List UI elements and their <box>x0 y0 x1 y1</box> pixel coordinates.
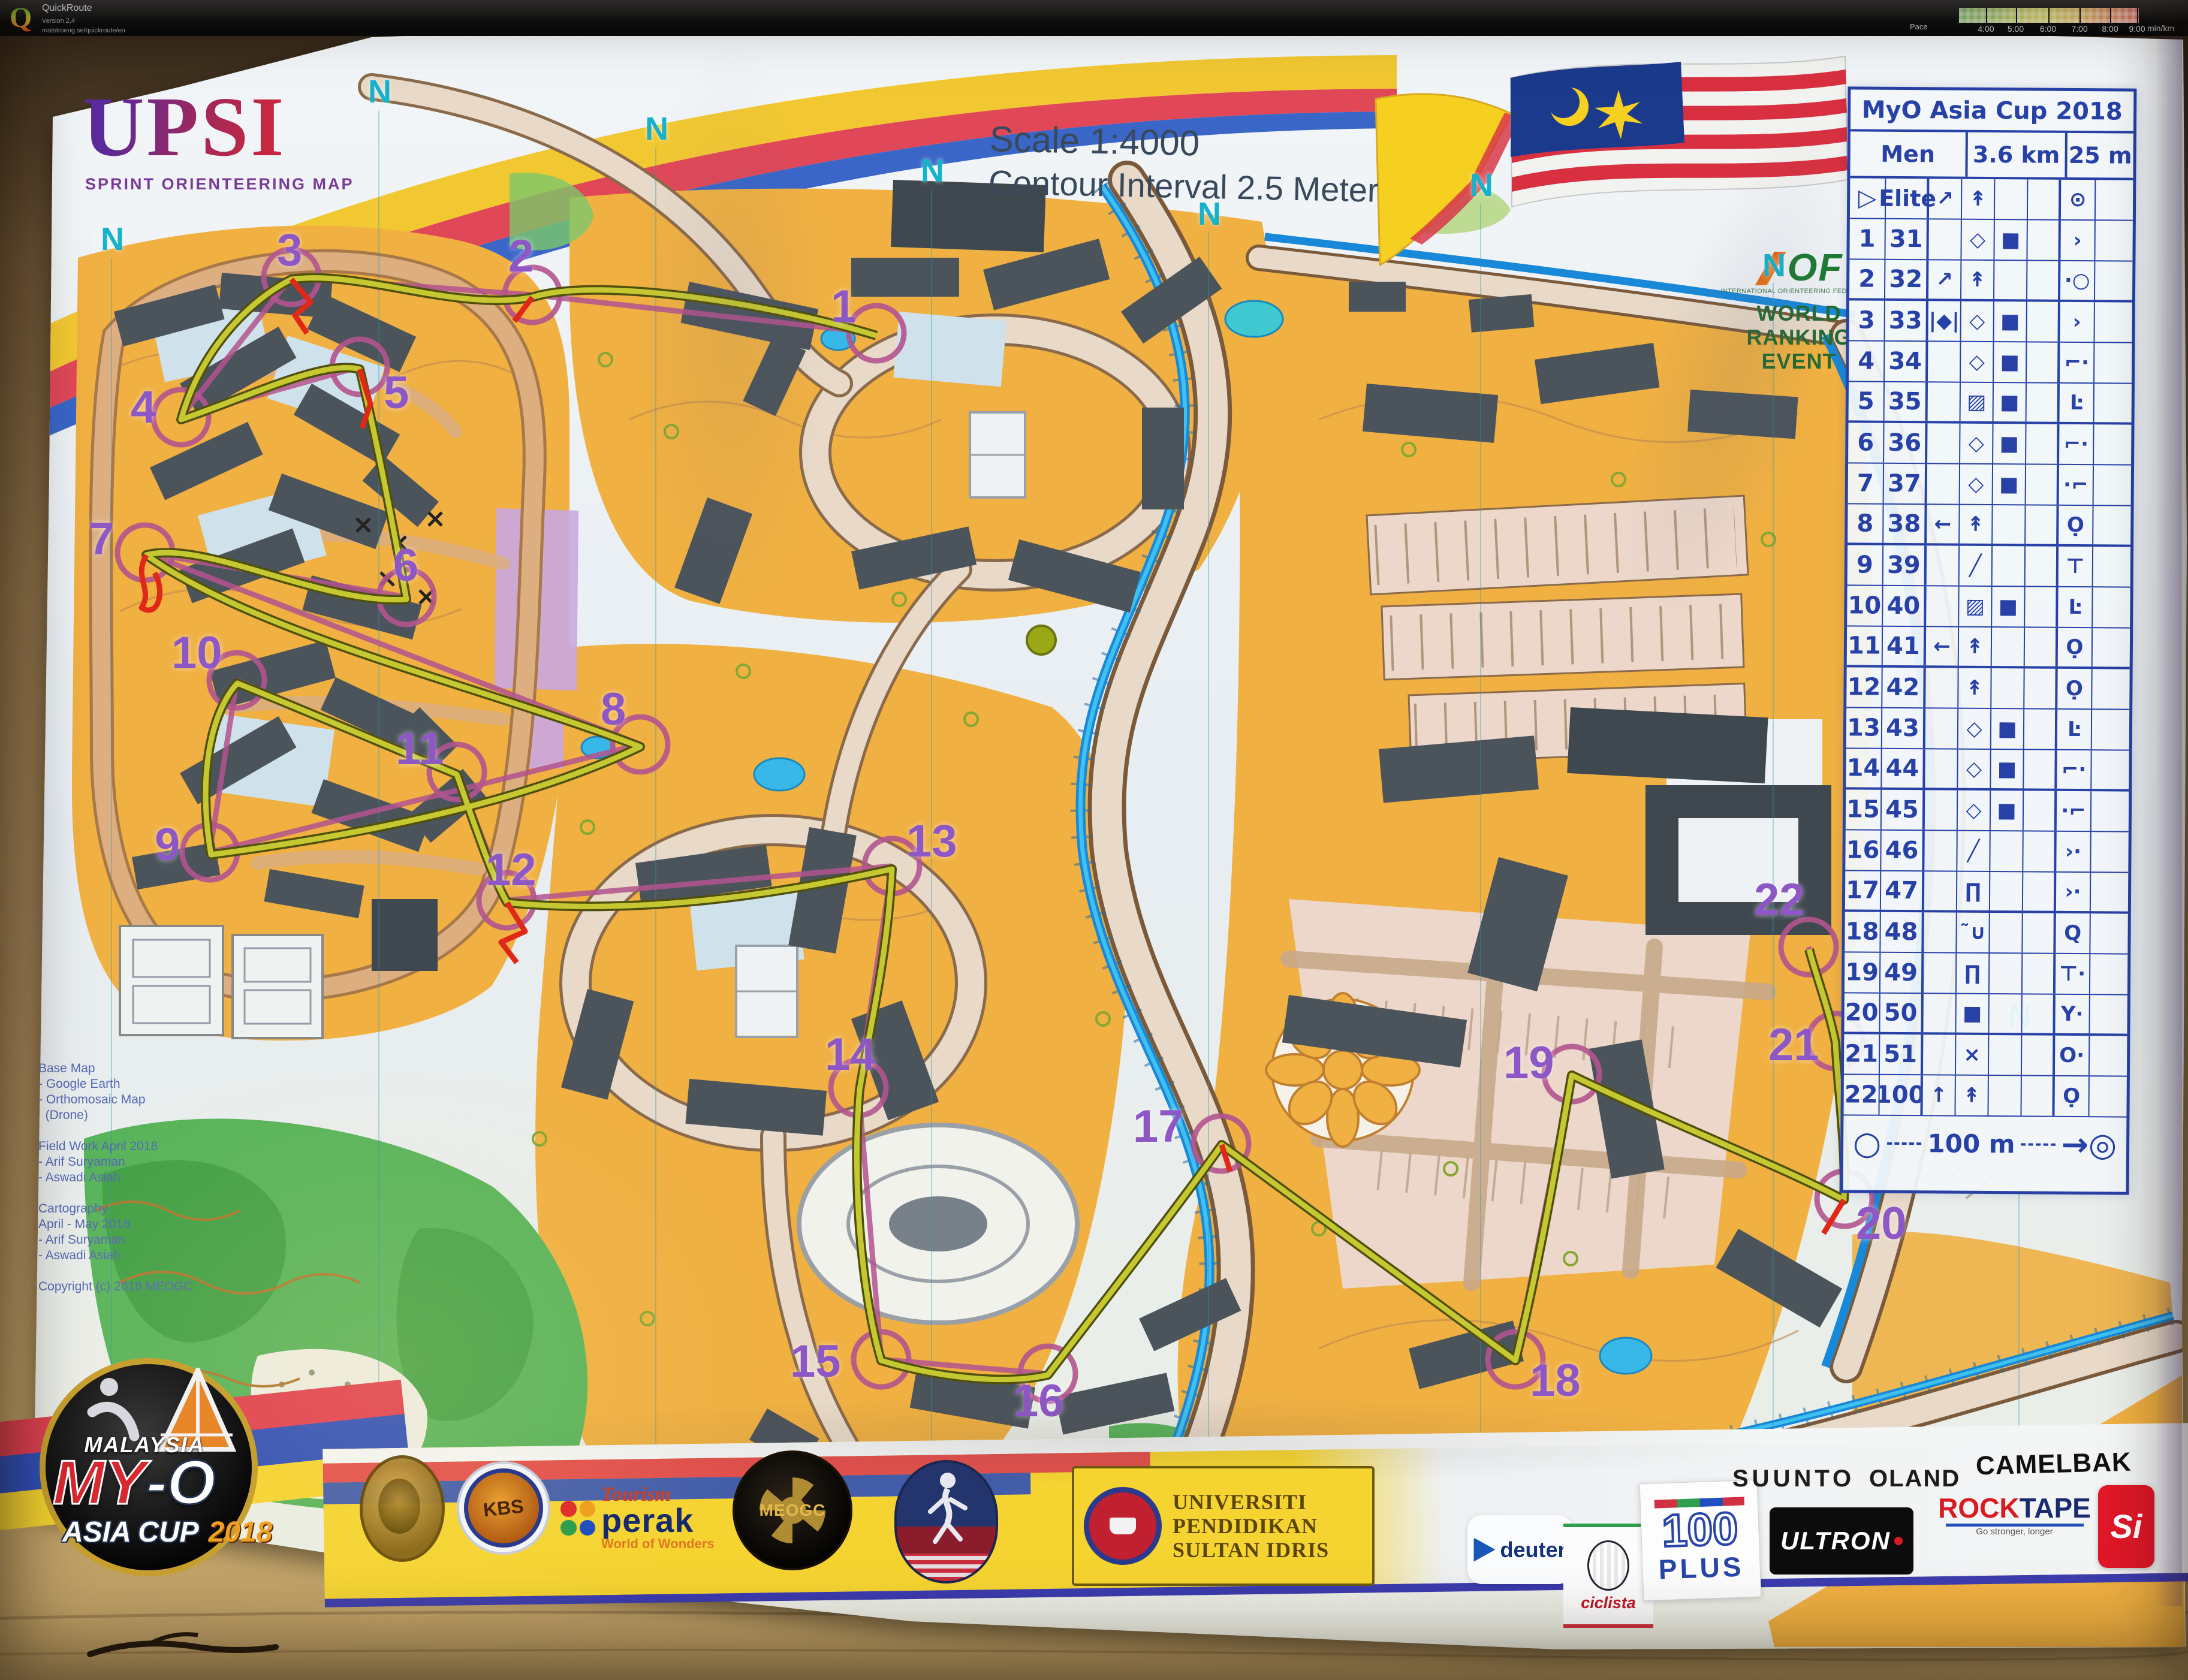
control-sequence-cell: 22 <box>1843 1075 1879 1114</box>
pace-tick-label: 5:00 <box>2008 24 2024 34</box>
university-name: UNIVERSITIPENDIDIKANSULTAN IDRIS <box>1173 1490 1329 1562</box>
control-description-row: 1 31 ◇ ■ › <box>1849 219 2132 261</box>
control-description-row: 15 45 ◇ ■ ·⌐ <box>1846 789 2129 832</box>
ultron-text: ULTRON <box>1780 1528 1891 1554</box>
symbol-cell-e <box>1990 954 2023 993</box>
control-number: 9 <box>155 822 180 868</box>
deuter-logo: deuter <box>1467 1515 1572 1584</box>
credit-line: (Drone) <box>38 1108 193 1123</box>
symbol-cell-d: ↟ <box>1955 1076 1988 1115</box>
symbol-cell-f <box>2026 505 2059 544</box>
symbol-cell-g: ⊤· <box>2056 954 2090 994</box>
control-sequence-cell: 15 <box>1846 789 1882 829</box>
card-event-title: MyO Asia Cup 2018 <box>1851 89 2133 133</box>
ultron-logo: ULTRON <box>1770 1507 1913 1575</box>
rocktape-logo: ROCK TAPE Go stronger, longer <box>1935 1494 2094 1561</box>
control-number: 6 <box>393 543 418 589</box>
control-code-cell: 43 <box>1882 708 1925 749</box>
symbol-cell-f <box>2026 424 2059 463</box>
control-code-cell: 37 <box>1884 464 1927 504</box>
symbol-cell-d: ↟ <box>1961 261 1994 299</box>
control-sequence-cell: 21 <box>1844 1034 1880 1073</box>
symbol-cell-f <box>2027 342 2060 382</box>
symbol-cell-e <box>1994 261 2027 299</box>
control-sequence-cell: 4 <box>1849 341 1885 381</box>
symbol-cell-g: ›· <box>2056 832 2091 871</box>
upsi-university-logo: UNIVERSITIPENDIDIKANSULTAN IDRIS <box>1072 1466 1375 1586</box>
symbol-cell-d: ↟ <box>1960 505 1993 544</box>
deuter-icon <box>1473 1538 1495 1562</box>
symbol-cell-h <box>2091 791 2129 831</box>
control-number: 12 <box>486 847 537 893</box>
symbol-cell-h <box>2095 221 2132 260</box>
control-sequence-cell: ▷ <box>1850 178 1886 218</box>
myo-name-red: MY <box>53 1453 146 1513</box>
control-code-cell: 35 <box>1885 382 1928 421</box>
runner-emblem-logo <box>894 1460 998 1584</box>
symbol-cell-h <box>2094 302 2132 342</box>
dashed-line <box>1887 1142 1921 1145</box>
credit-line <box>38 1123 193 1139</box>
control-code-cell: 31 <box>1885 219 1928 260</box>
control-number: 5 <box>384 370 409 416</box>
symbol-cell-d: ↟ <box>1959 628 1992 666</box>
control-sequence-cell: 1 <box>1849 219 1885 258</box>
rocktape-rock-text: ROCK <box>1938 1494 2019 1522</box>
card-finish-row: ○ 100 m →◎ <box>1843 1115 2127 1172</box>
control-number: 10 <box>171 631 222 676</box>
control-code-cell: 32 <box>1885 260 1928 299</box>
symbol-cell-d: ∏ <box>1957 954 1990 993</box>
symbol-cell-g: ·⌐ <box>2059 465 2094 505</box>
symbol-cell-e: ■ <box>1994 342 2027 382</box>
symbol-cell-e: ■ <box>1991 791 2024 830</box>
control-number: 16 <box>1013 1379 1064 1424</box>
tourism-perak-logo: Tourism perak World of Wonders <box>560 1467 728 1569</box>
symbol-cell-g: ›· <box>2056 873 2091 911</box>
symbol-cell-g: ⌐· <box>2060 343 2094 382</box>
finish-distance: 100 m <box>1927 1131 2015 1157</box>
symbol-cell-f <box>2025 587 2058 626</box>
symbol-cell-f <box>2023 831 2056 871</box>
symbol-cell-e <box>1992 628 2025 666</box>
symbol-cell-e <box>1991 668 2024 708</box>
finish-start-circle: ○ <box>1853 1127 1882 1159</box>
symbol-cell-c <box>1928 219 1961 259</box>
symbol-cell-d: ∏ <box>1957 872 1990 910</box>
control-sequence-cell: 19 <box>1845 952 1880 992</box>
control-code-cell: 44 <box>1882 749 1925 788</box>
myo-asia-cup-text: ASIA CUP <box>62 1518 199 1548</box>
symbol-cell-e: ■ <box>1994 383 2027 421</box>
control-code-cell: 45 <box>1882 790 1925 830</box>
app-version: Version 2.4 <box>42 17 75 25</box>
control-description-row: 19 49 ∏ ⊤· <box>1845 952 2127 995</box>
symbol-cell-g: ⌐· <box>2057 750 2091 789</box>
control-code-cell: 51 <box>1880 1034 1923 1075</box>
symbol-cell-c <box>1928 382 1961 421</box>
symbol-cell-c: |◆| <box>1928 301 1961 340</box>
north-letter: N <box>368 76 391 108</box>
credit-line <box>38 1263 193 1279</box>
north-letter: N <box>1762 249 1786 282</box>
ciclista-logo: ciclista <box>1563 1524 1653 1628</box>
rocktape-tape-text: TAPE <box>2020 1494 2091 1522</box>
control-code-cell: 49 <box>1880 953 1924 993</box>
symbol-cell-d: ↟ <box>1958 668 1991 708</box>
symbol-cell-e <box>1990 913 2023 952</box>
symbol-cell-e <box>1989 994 2022 1033</box>
symbol-cell-g: › <box>2060 221 2095 260</box>
symbol-cell-d: ◇ <box>1958 709 1991 749</box>
control-sequence-cell: 2 <box>1849 260 1885 298</box>
symbol-cell-f <box>2027 220 2060 260</box>
pace-tick-label: 6:00 <box>2040 24 2056 34</box>
symbol-cell-e <box>1989 1035 2022 1075</box>
app-name: QuickRoute <box>42 3 92 14</box>
symbol-cell-d: ◇ <box>1960 424 1993 463</box>
world-of-wonders-text: World of Wonders <box>601 1536 715 1552</box>
card-climb: 25 m <box>2067 133 2133 178</box>
suunto-logo: SUUNTO <box>1732 1466 1855 1491</box>
control-description-row: 17 47 ∏ ›· <box>1845 871 2128 913</box>
control-sequence-cell: 7 <box>1848 463 1884 503</box>
control-sequence-cell: 9 <box>1848 545 1883 584</box>
pace-tick-label: 8:00 <box>2102 24 2118 34</box>
symbol-cell-d: ■ <box>1956 994 1989 1033</box>
symbol-cell-d: ╱ <box>1957 831 1990 871</box>
control-number: 11 <box>396 726 444 772</box>
symbol-cell-h <box>2090 1036 2127 1075</box>
control-number: 22 <box>1754 877 1805 923</box>
symbol-cell-e <box>1993 546 2026 586</box>
pace-tick-label: 7:00 <box>2071 24 2087 34</box>
symbol-cell-f <box>2023 913 2056 952</box>
oland-logo: OLAND <box>1869 1466 1960 1491</box>
symbol-cell-f <box>2022 1035 2055 1075</box>
control-sequence-cell: 5 <box>1849 382 1885 420</box>
map-scale: Scale 1:4000 <box>989 119 1380 167</box>
control-sequence-cell: 18 <box>1845 912 1880 951</box>
si-text: Si <box>2111 1509 2142 1544</box>
symbol-cell-g: ·⌐ <box>2057 791 2091 831</box>
symbol-cell-h <box>2093 628 2130 666</box>
symbol-cell-d: ╱ <box>1960 546 1993 586</box>
symbol-cell-c <box>1924 831 1957 870</box>
control-sequence-cell: 3 <box>1849 300 1885 340</box>
symbol-cell-d: ▨ <box>1959 587 1992 626</box>
symbol-cell-f <box>2023 872 2056 910</box>
pace-tick-label: 4:00 <box>1978 24 1994 34</box>
control-number: 1 <box>831 284 856 330</box>
symbol-cell-h <box>2093 506 2130 544</box>
symbol-cell-f <box>2021 1076 2054 1115</box>
symbol-cell-c <box>1924 912 1957 952</box>
symbol-cell-d: ◇ <box>1961 301 1994 341</box>
symbol-cell-e: ■ <box>1991 709 2024 749</box>
symbol-cell-g: Ŀ <box>2060 384 2094 422</box>
control-description-row: 10 40 ▨ ■ Ŀ <box>1847 586 2130 628</box>
control-code-cell: 41 <box>1883 627 1926 666</box>
symbol-cell-h <box>2090 995 2127 1033</box>
symbol-cell-f <box>2027 301 2060 341</box>
symbol-cell-c: ← <box>1926 627 1959 665</box>
control-number: 3 <box>277 228 302 273</box>
symbol-cell-h <box>2094 384 2132 422</box>
symbol-cell-g: › <box>2060 302 2094 342</box>
pace-legend-labels: 4:005:006:007:008:009:00 <box>1959 8 2139 34</box>
credit-line: - Arif Suryaman <box>38 1154 193 1170</box>
symbol-cell-e: ■ <box>1994 220 2027 260</box>
100plus-number: 100 <box>1661 1506 1738 1555</box>
symbol-cell-g: Ŀ <box>2057 710 2092 749</box>
control-sequence-cell: 8 <box>1848 504 1883 542</box>
dashed-line <box>2021 1143 2056 1145</box>
symbol-cell-f <box>2024 668 2057 708</box>
control-description-row: 18 48 ˜∪ Q <box>1845 912 2127 954</box>
symbol-cell-g: Y· <box>2055 995 2090 1033</box>
symbol-cell-f <box>2024 750 2057 788</box>
control-description-row: 2 32 ↗ ↟ ·○ <box>1849 260 2132 302</box>
credit-line: April - May 2018 <box>38 1217 193 1232</box>
symbol-cell-f <box>2027 383 2060 421</box>
control-sequence-cell: 10 <box>1847 586 1883 625</box>
symbol-cell-c <box>1923 1034 1956 1074</box>
ciclista-text: ciclista <box>1581 1594 1636 1611</box>
symbol-cell-c <box>1923 994 1956 1032</box>
control-description-row: 3 33 |◆| ◇ ■ › <box>1849 300 2132 343</box>
university-crest-icon <box>1084 1487 1162 1565</box>
credit-line: - Orthomosaic Map <box>38 1092 193 1108</box>
kbs-text: KBS <box>483 1497 525 1520</box>
finish-circle: →◎ <box>2062 1129 2117 1162</box>
symbol-cell-h <box>2094 465 2131 505</box>
control-number: 20 <box>1856 1201 1907 1247</box>
north-letter: N <box>645 113 668 145</box>
symbol-cell-c <box>1926 586 1959 626</box>
control-code-cell: 48 <box>1880 912 1924 952</box>
control-number: 7 <box>89 517 114 562</box>
pace-legend-unit: min/km <box>2147 23 2174 33</box>
card-distance: 3.6 km <box>1967 132 2068 177</box>
control-code-cell: 40 <box>1883 586 1926 626</box>
perak-crest-logo <box>360 1455 445 1562</box>
control-description-row: 12 42 ↟ Ọ <box>1846 667 2129 710</box>
symbol-cell-g: Q <box>2056 913 2090 953</box>
symbol-cell-h <box>2096 180 2133 219</box>
control-description-row: 21 51 × O· <box>1844 1034 2127 1076</box>
symbol-cell-e <box>1995 179 2028 219</box>
app-title-bar: Q QuickRoute Version 2.4 matstroeng.se/q… <box>0 0 2188 36</box>
symbol-cell-f <box>2022 994 2055 1033</box>
symbol-cell-h <box>2090 913 2127 953</box>
symbol-cell-c <box>1924 953 1957 993</box>
symbol-cell-h <box>2093 587 2130 627</box>
credit-line: Cartography <box>38 1201 193 1217</box>
symbol-cell-c <box>1925 668 1958 707</box>
camelbak-logo: CAMELBAK <box>1975 1449 2132 1480</box>
card-class: Men Elite <box>1850 131 1968 176</box>
rocktape-tagline: Go stronger, longer <box>1976 1527 2053 1537</box>
symbol-cell-c: ↗ <box>1929 179 1962 218</box>
meogc-text: MEOGC <box>760 1502 826 1519</box>
control-number: 2 <box>508 234 534 279</box>
control-sequence-cell: 13 <box>1846 708 1882 747</box>
university-name-line: PENDIDIKAN <box>1173 1514 1329 1538</box>
ciclista-emblem-icon <box>1587 1540 1629 1591</box>
control-code-cell: 36 <box>1884 423 1927 463</box>
symbol-cell-e <box>1988 1076 2021 1115</box>
control-code-cell: 100 <box>1879 1075 1922 1115</box>
symbol-cell-c <box>1927 423 1960 463</box>
symbol-cell-f <box>2026 546 2059 586</box>
control-description-row: 11 41 ← ↟ Ọ <box>1847 626 2130 669</box>
symbol-cell-c: ← <box>1927 505 1960 543</box>
symbol-cell-g: Ọ <box>2054 1076 2089 1116</box>
control-code-cell: 38 <box>1883 505 1927 544</box>
control-code-cell: 46 <box>1881 831 1924 871</box>
control-description-row: 20 50 ■ Y· <box>1844 993 2127 1036</box>
map-scale-block: Scale 1:4000 Contour Interval 2.5 Meter <box>988 119 1380 209</box>
credit-line: - Aswadi Asiah <box>38 1170 193 1186</box>
symbol-cell-h <box>2092 710 2129 749</box>
control-number: 17 <box>1133 1104 1184 1150</box>
symbol-cell-f <box>2025 628 2058 666</box>
university-name-line: SULTAN IDRIS <box>1173 1538 1329 1562</box>
runner-icon <box>897 1462 996 1552</box>
card-header-row: Men Elite 3.6 km 25 m <box>1850 131 2133 180</box>
control-code-cell: 34 <box>1885 342 1928 382</box>
symbol-cell-c <box>1924 871 1957 910</box>
meogc-logo: MEOGC <box>733 1450 852 1570</box>
control-code-cell: 42 <box>1882 668 1925 708</box>
credit-line: Copyright (c) 2018 MEOGC <box>38 1279 193 1295</box>
symbol-cell-d: ↟ <box>1962 179 1995 219</box>
si-logo: Si <box>2098 1485 2154 1568</box>
control-description-row: 14 44 ◇ ■ ⌐· <box>1846 749 2129 791</box>
symbol-cell-h <box>2090 954 2127 994</box>
app-url[interactable]: matstroeng.se/quickroute/en <box>42 27 125 34</box>
control-code-cell: 50 <box>1880 994 1923 1033</box>
myo-name-text: MY -O <box>53 1453 216 1513</box>
symbol-cell-d: ◇ <box>1958 791 1991 830</box>
symbol-cell-f <box>2023 954 2056 993</box>
myo-name-white: -O <box>146 1453 216 1513</box>
control-number: 21 <box>1768 1023 1819 1068</box>
credit-line: Field Work April 2018 <box>38 1139 193 1154</box>
symbol-cell-e <box>1993 505 2026 544</box>
symbol-cell-c <box>1925 790 1958 830</box>
symbol-cell-h <box>2091 873 2128 911</box>
symbol-cell-d: ◇ <box>1961 220 1994 260</box>
symbol-cell-g: O· <box>2055 1036 2090 1075</box>
symbol-cell-d: ◇ <box>1961 342 1994 382</box>
map-credits: Base Map- Google Earth- Orthomosaic Map … <box>38 1061 193 1295</box>
symbol-cell-f <box>2028 179 2061 219</box>
symbol-cell-h <box>2091 750 2129 789</box>
symbol-cell-c: ↑ <box>1922 1075 1955 1115</box>
symbol-cell-e: ■ <box>1991 750 2024 788</box>
perak-dots-icon <box>560 1501 595 1536</box>
quickroute-logo-icon: Q <box>10 1 32 35</box>
symbol-cell-e: ■ <box>1994 301 2027 341</box>
symbol-cell-g: ⌐· <box>2059 424 2094 464</box>
north-letter: N <box>921 155 944 187</box>
symbol-cell-h <box>2094 343 2132 382</box>
credit-line: - Aswadi Asiah <box>38 1248 193 1263</box>
symbol-cell-h <box>2094 424 2131 464</box>
north-letter: N <box>1198 198 1221 230</box>
control-description-row: 16 46 ╱ ›· <box>1845 830 2128 873</box>
control-sequence-cell: 17 <box>1845 871 1881 909</box>
control-description-row: ▷ ↗ ↟ ⊙ <box>1850 178 2133 221</box>
symbol-cell-g: Ọ <box>2059 506 2093 544</box>
symbol-cell-f <box>2024 709 2057 749</box>
control-code-cell: 39 <box>1883 545 1927 586</box>
north-letter: N <box>1470 169 1493 201</box>
symbol-cell-f <box>2027 261 2060 299</box>
pace-legend-label: Pace <box>1910 23 1928 31</box>
control-number: 15 <box>790 1339 841 1385</box>
symbol-cell-c <box>1927 545 1960 585</box>
map-title: UPSI <box>83 84 287 169</box>
control-number: 18 <box>1530 1358 1581 1404</box>
credit-line: - Arif Suryaman <box>38 1232 193 1248</box>
control-description-row: 22 100 ↑ ↟ Ọ <box>1843 1075 2126 1117</box>
iof-logo-text: OF <box>1788 249 1843 285</box>
symbol-cell-h <box>2093 547 2130 586</box>
perak-text: perak <box>601 1505 715 1536</box>
control-description-row: 6 36 ◇ ■ ⌐· <box>1848 423 2131 465</box>
symbol-cell-h <box>2092 669 2129 708</box>
symbol-cell-h <box>2089 1076 2126 1116</box>
control-number: 19 <box>1503 1040 1554 1086</box>
symbol-cell-h <box>2095 261 2132 300</box>
control-sequence-cell: 14 <box>1846 749 1882 787</box>
symbol-cell-e <box>1990 872 2023 910</box>
control-number: 13 <box>906 819 957 864</box>
control-code-cell: 33 <box>1885 301 1928 341</box>
100plus-text: PLUS <box>1658 1552 1744 1584</box>
myo-series-row: ASIA CUP 2018 <box>62 1518 272 1548</box>
credit-line: - Google Earth <box>38 1076 193 1092</box>
credit-line <box>38 1186 193 1201</box>
symbol-cell-g: Ọ <box>2057 669 2092 708</box>
symbol-cell-c: ↗ <box>1928 260 1961 298</box>
symbol-cell-g: Ọ <box>2058 628 2093 666</box>
control-sequence-cell: 12 <box>1846 667 1882 707</box>
symbol-cell-f <box>2026 465 2059 504</box>
control-description-row: 9 39 ╱ ⊤ <box>1848 545 2130 587</box>
emblem-stripes <box>897 1554 996 1581</box>
control-code-cell <box>1886 179 1929 219</box>
north-letter: N <box>101 223 124 255</box>
kbs-logo: KBS <box>457 1461 550 1555</box>
control-sequence-cell: 6 <box>1848 423 1884 462</box>
symbol-cell-c <box>1928 342 1961 381</box>
symbol-cell-d: × <box>1956 1035 1989 1075</box>
symbol-cell-e: ■ <box>1992 587 2025 626</box>
control-code-cell: 47 <box>1881 871 1924 910</box>
control-description-card: MyO Asia Cup 2018 Men Elite 3.6 km 25 m … <box>1840 86 2137 1195</box>
symbol-cell-f <box>2024 791 2057 830</box>
symbol-cell-d: ◇ <box>1958 750 1991 788</box>
symbol-cell-c <box>1927 464 1960 503</box>
symbol-cell-d: ◇ <box>1960 465 1993 504</box>
myo-year-text: 2018 <box>209 1518 273 1548</box>
control-description-row: 4 34 ◇ ■ ⌐· <box>1849 341 2132 384</box>
symbol-cell-e: ■ <box>1993 424 2026 463</box>
